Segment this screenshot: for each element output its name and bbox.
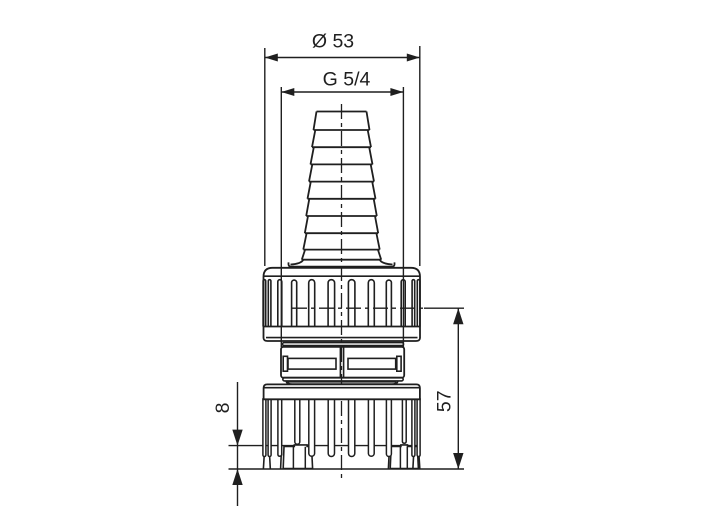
svg-text:Ø 53: Ø 53 [312,31,354,53]
svg-text:G 5/4: G 5/4 [323,69,371,91]
svg-text:8: 8 [212,402,234,413]
svg-text:57: 57 [434,390,456,412]
